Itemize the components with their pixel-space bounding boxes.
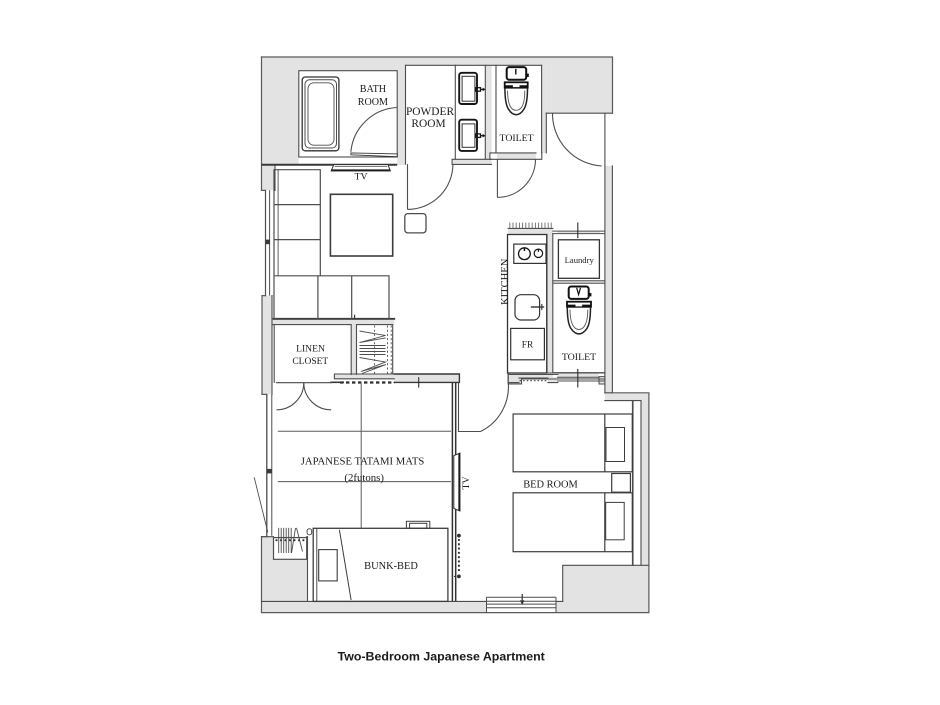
svg-text:TV: TV	[461, 476, 472, 489]
svg-text:BATH: BATH	[360, 84, 386, 95]
svg-text:TV: TV	[354, 171, 367, 182]
svg-text:ROOM: ROOM	[411, 118, 445, 130]
svg-text:ROOM: ROOM	[358, 97, 388, 108]
svg-text:TOILET: TOILET	[562, 352, 596, 363]
svg-text:TOILET: TOILET	[500, 133, 534, 144]
svg-text:POWDER: POWDER	[406, 106, 454, 118]
svg-text:(2futons): (2futons)	[344, 472, 384, 484]
svg-text:JAPANESE TATAMI MATS: JAPANESE TATAMI MATS	[301, 455, 425, 467]
svg-text:LINEN: LINEN	[296, 343, 325, 354]
svg-text:CLOSET: CLOSET	[292, 357, 328, 367]
svg-text:KITCHEN: KITCHEN	[500, 258, 511, 305]
svg-text:BUNK-BED: BUNK-BED	[364, 561, 418, 572]
svg-text:Two-Bedroom Japanese Apartment: Two-Bedroom Japanese Apartment	[338, 650, 545, 664]
svg-text:Laundry: Laundry	[565, 255, 595, 265]
svg-text:BED ROOM: BED ROOM	[523, 479, 578, 490]
svg-text:FR: FR	[522, 340, 534, 350]
